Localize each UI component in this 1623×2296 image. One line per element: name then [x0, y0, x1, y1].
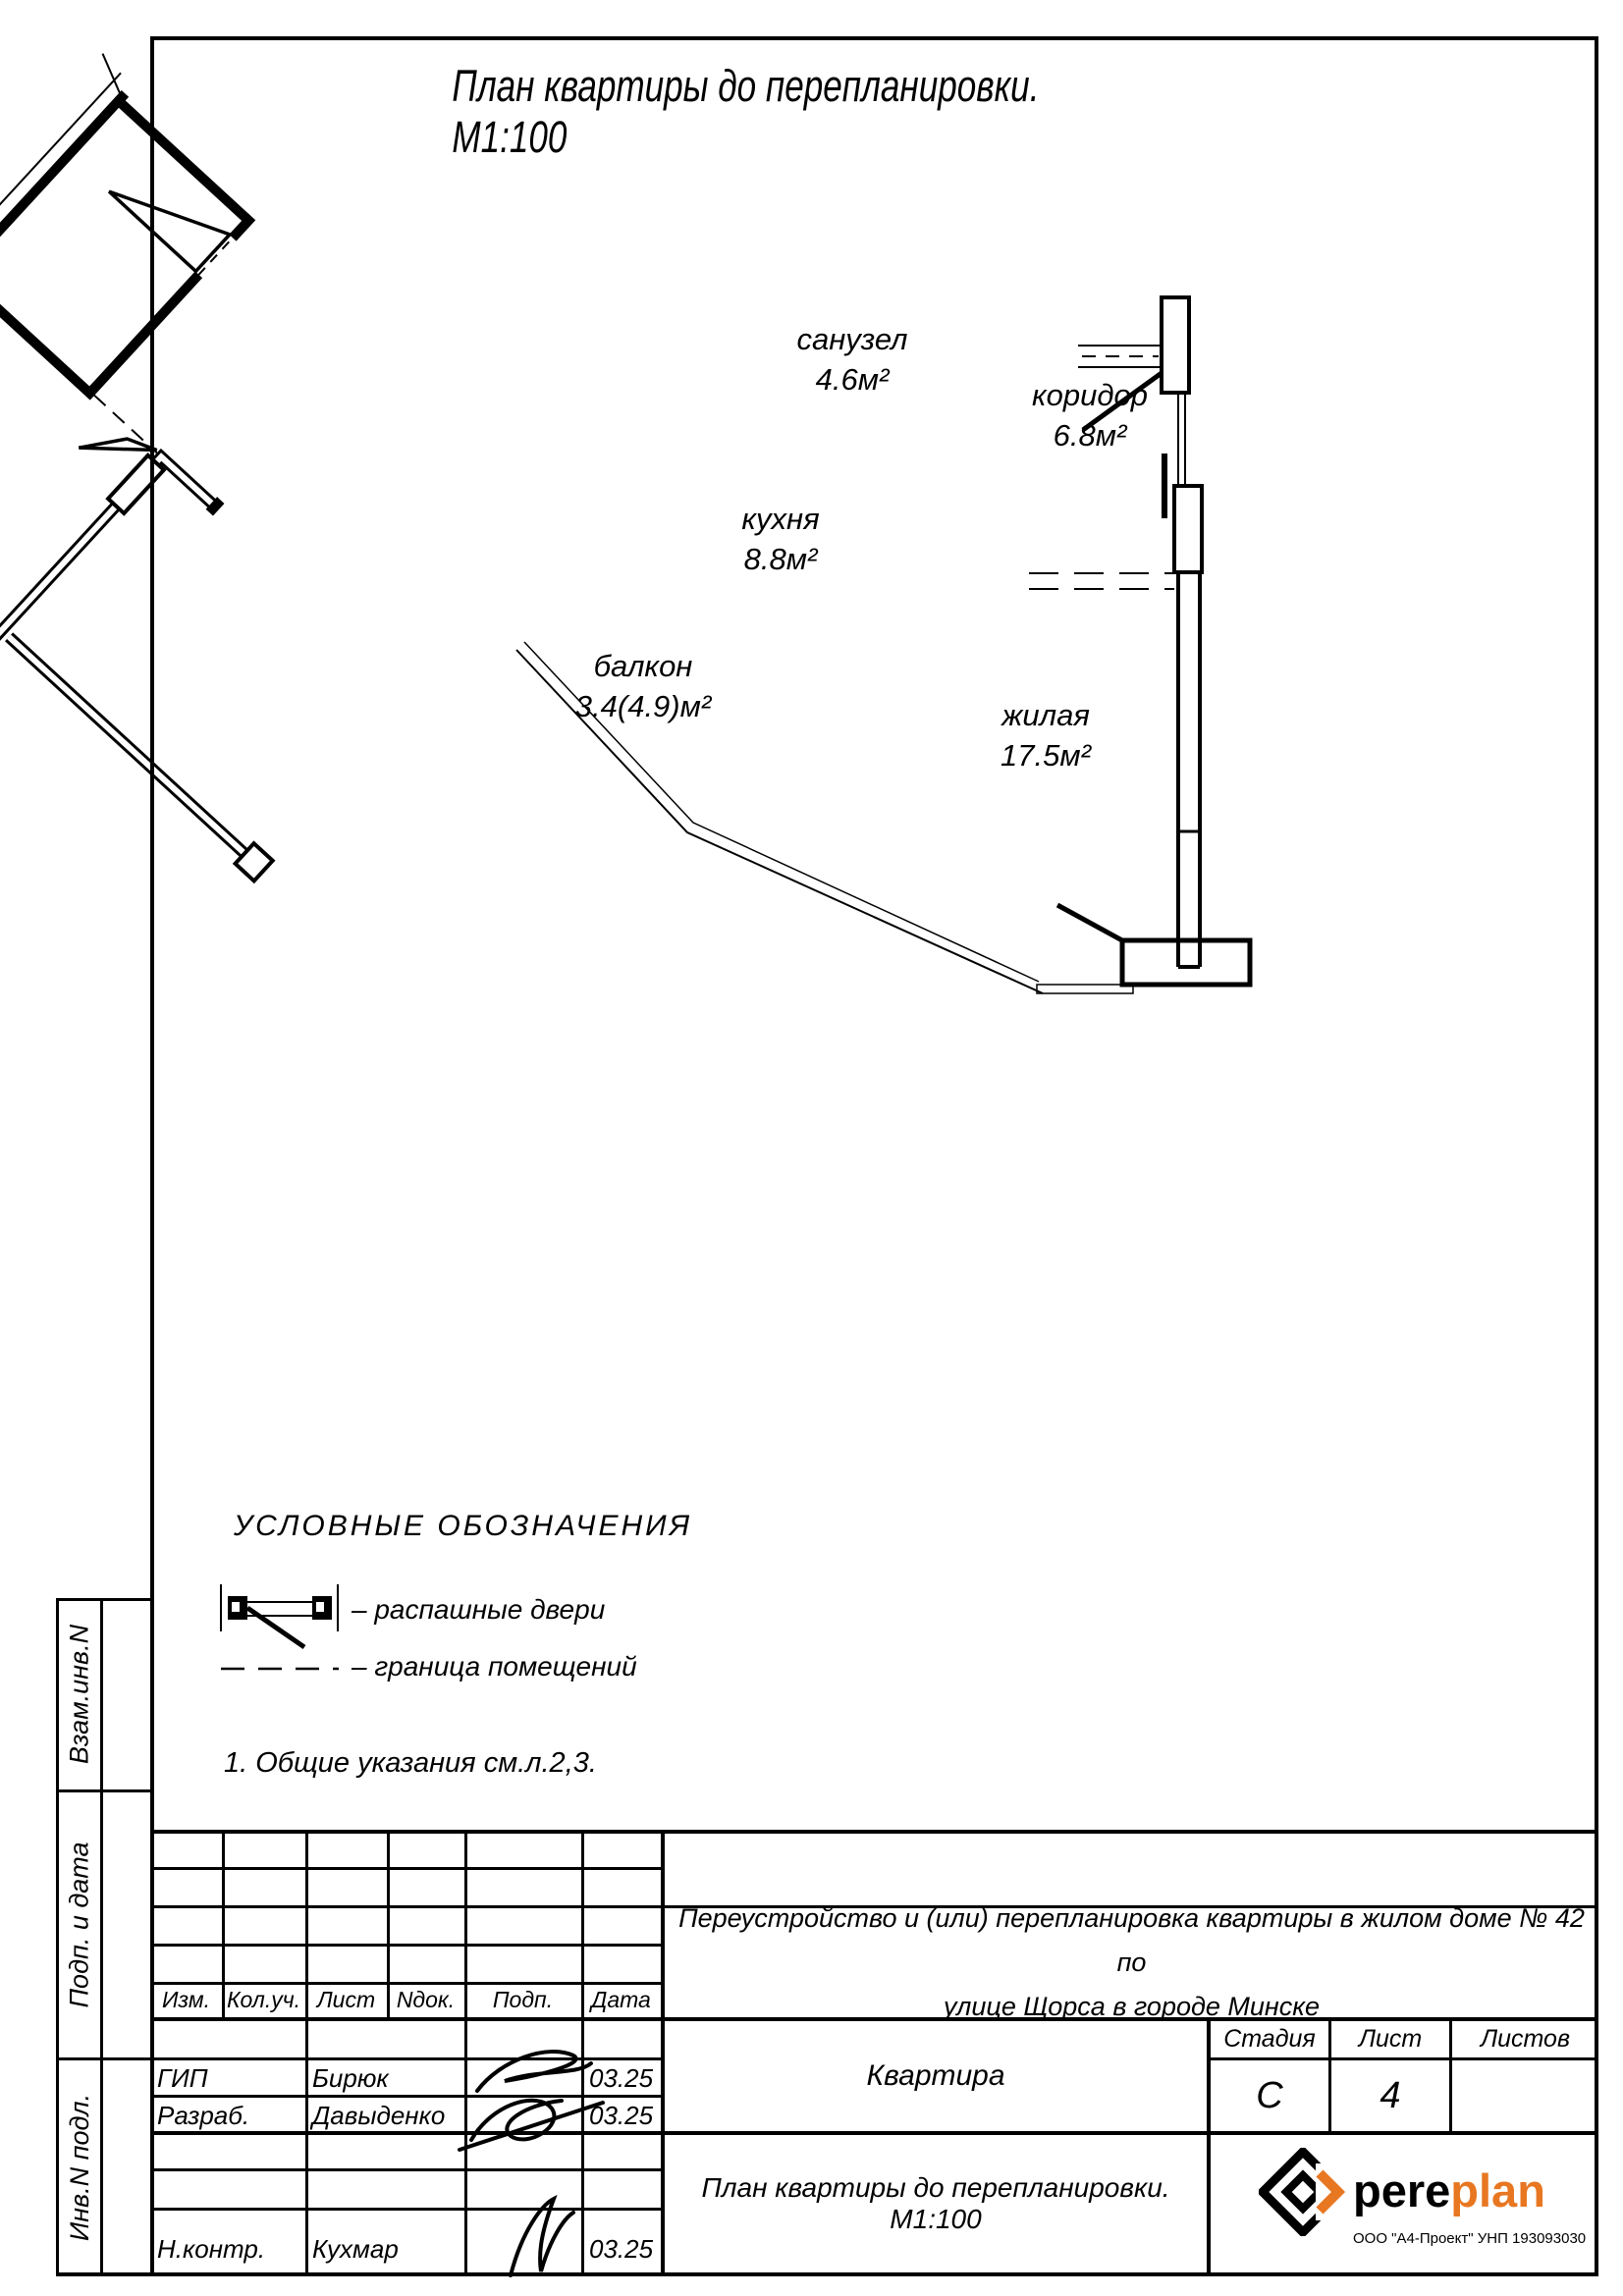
col-header-list: Лист: [305, 1985, 387, 2014]
room-label-koridor: коридор 6.8м²: [1032, 375, 1148, 455]
drawing-sheet: План квартиры до перепланировки. М1:100 …: [0, 0, 1623, 2296]
frame-top: [150, 36, 1598, 40]
col-header-data: Дата: [581, 1985, 661, 2014]
stage-label: Стадия: [1211, 2020, 1328, 2057]
titleblock-line: [150, 1944, 664, 1947]
sheets-value: [1452, 2060, 1598, 2131]
sidebar-label-podp: Подп. и дата: [56, 1791, 103, 2059]
room-name: коридор: [1032, 375, 1148, 415]
stage-value: С: [1211, 2060, 1328, 2131]
room-label-kuhnya: кухня 8.8м²: [741, 499, 819, 579]
object-name: Квартира: [665, 2021, 1207, 2131]
date-razrab: 03.25: [589, 2101, 653, 2131]
titleblock-line: [150, 1867, 664, 1870]
name-kuhmar: Кухмар: [312, 2234, 399, 2265]
page-title: План квартиры до перепланировки. М1:100: [452, 61, 1109, 163]
role-gip: ГИП: [157, 2063, 208, 2094]
legend-symbols: [221, 1584, 339, 1669]
role-nkontr: Н.контр.: [157, 2234, 265, 2265]
room-label-sanuzel: санузел 4.6м²: [796, 319, 907, 400]
col-header-ndok: Nдок.: [387, 1985, 464, 2014]
general-note: 1. Общие указания см.л.2,3.: [224, 1747, 597, 1780]
room-name: санузел: [796, 319, 907, 359]
swing-doors-symbol: [221, 1584, 338, 1647]
project-line-1: Переустройство и (или) перепланировка кв…: [665, 1896, 1598, 1985]
room-name: кухня: [741, 499, 819, 539]
date-nkontr: 03.25: [589, 2234, 653, 2265]
col-header-podp: Подп.: [464, 1985, 581, 2014]
col-header-koluch: Кол.уч.: [222, 1985, 305, 2014]
room-area: 6.8м²: [1032, 415, 1148, 455]
room-area: 8.8м²: [741, 539, 819, 579]
doc-title: План квартиры до перепланировки. М1:100: [665, 2135, 1207, 2272]
logo-text-plan: plan: [1450, 2164, 1545, 2216]
titleblock-line: [150, 2057, 664, 2060]
col-header-izm: Изм.: [150, 1985, 222, 2014]
logo-text-pere: pere: [1353, 2164, 1450, 2216]
sheets-label: Листов: [1452, 2020, 1598, 2057]
legend-heading: УСЛОВНЫЕ ОБОЗНАЧЕНИЯ: [234, 1510, 692, 1543]
frame-left: [150, 36, 154, 2276]
room-area: 3.4(4.9)м²: [575, 686, 711, 726]
titleblock-line: [581, 1830, 584, 2275]
room-area: 17.5м²: [1001, 735, 1091, 775]
name-biryuk: Бирюк: [312, 2063, 389, 2094]
frame-bottom: [150, 2272, 1598, 2276]
rotated-walls: [0, 54, 597, 1008]
name-davydenko: Давыденко: [312, 2101, 445, 2131]
bathroom-door-leaf: [109, 155, 230, 272]
legend-item-boundary: – граница помещений: [352, 1651, 637, 1682]
titleblock-line: [150, 2095, 664, 2098]
logo-wordmark: pereplan: [1353, 2163, 1545, 2217]
sidebar-label-inv: Инв.N подл.: [56, 2059, 103, 2275]
legend-item-doors: – распашные двери: [352, 1594, 605, 1626]
sidebar-label-vzam: Взам.инв.N: [56, 1598, 103, 1791]
room-area: 4.6м²: [796, 359, 907, 400]
role-razrab: Разраб.: [157, 2101, 249, 2131]
room-name: балкон: [575, 646, 711, 686]
pereplan-logo-icon: [1259, 2148, 1347, 2236]
titleblock-line: [150, 1830, 1598, 1834]
project-description: Переустройство и (или) перепланировка кв…: [665, 1908, 1598, 2017]
date-gip: 03.25: [589, 2063, 653, 2094]
logo-subtext: ООО "А4-Проект" УНП 193093030: [1353, 2230, 1586, 2247]
titleblock-line: [150, 2168, 664, 2171]
titleblock-line: [464, 1830, 467, 2275]
room-label-zhilaya: жилая 17.5м²: [1001, 695, 1091, 775]
balcony-door-swing: [1057, 905, 1122, 940]
titleblock-line: [150, 2208, 664, 2211]
room-name: жилая: [1001, 695, 1091, 735]
sheet-label: Лист: [1331, 2020, 1449, 2057]
room-label-balkon: балкон 3.4(4.9)м²: [575, 646, 711, 726]
titleblock-line: [305, 1830, 308, 2275]
sheet-value: 4: [1331, 2060, 1449, 2131]
